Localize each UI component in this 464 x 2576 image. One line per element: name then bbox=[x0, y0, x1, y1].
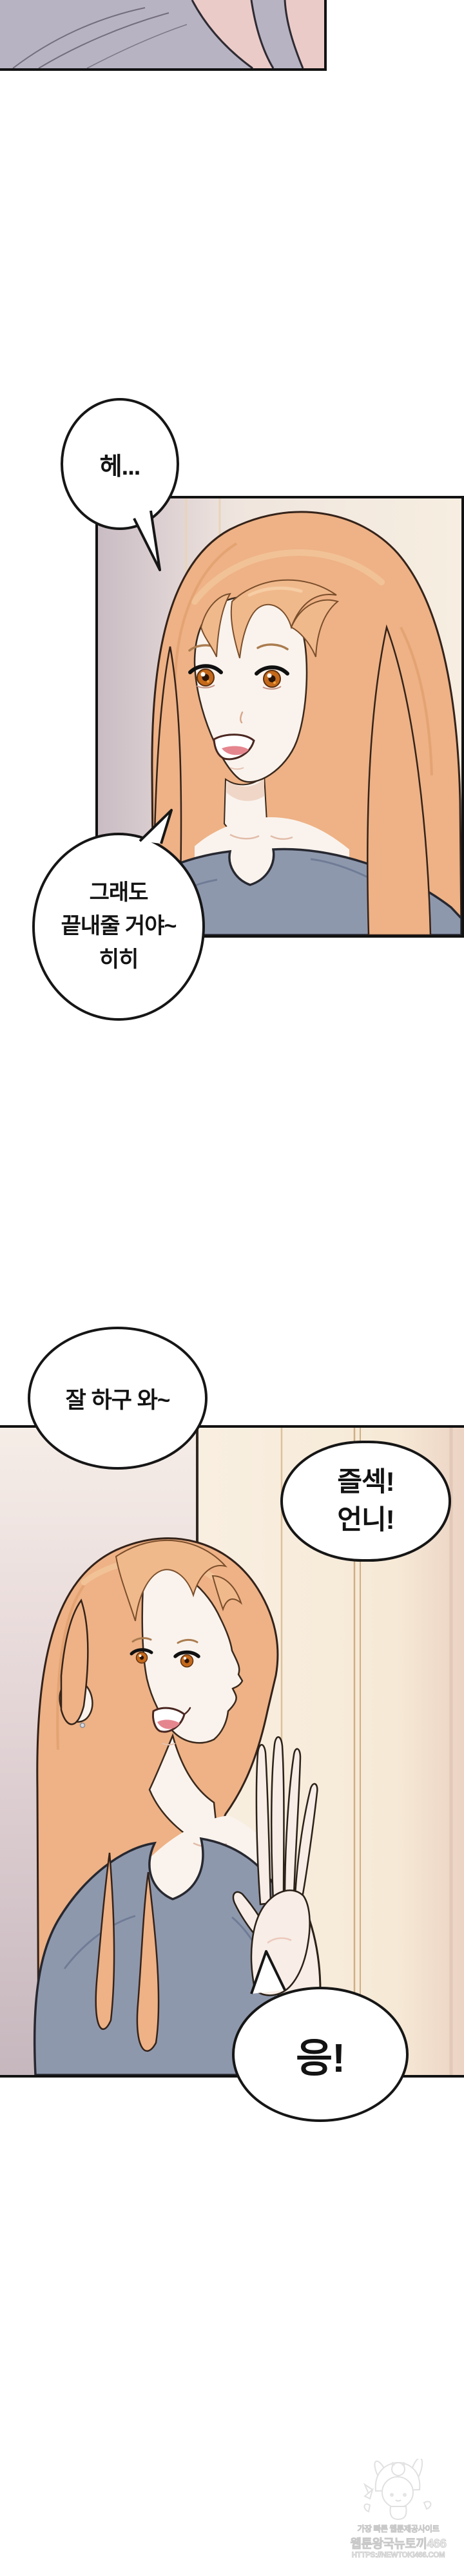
watermark-site-name: 웹툰왕국뉴토끼466 bbox=[344, 2534, 452, 2552]
speech-bubble-2: 그래도 끝내줄 거야~ 히히 bbox=[32, 833, 205, 1021]
webtoon-page: 헤... 그래도 끝내줄 거야~ 히히 잘 하구 와~ 즐섹! 언니! 응! bbox=[0, 0, 464, 2576]
speech-text-line: 응! bbox=[296, 2025, 345, 2083]
watermark-mascot-icon bbox=[360, 2459, 437, 2521]
speech-text-line: 그래도 bbox=[90, 876, 148, 910]
watermark-url: HTTPS://NEWTOKI466.COM bbox=[344, 2552, 452, 2559]
speech-text-line: 잘 하구 와~ bbox=[66, 1382, 170, 1415]
speech-text-line: 히히 bbox=[99, 943, 139, 977]
speech-bubble-5-tail bbox=[244, 1946, 295, 1999]
speech-text-line: 끝내줄 거야~ bbox=[61, 910, 177, 943]
speech-bubble-5: 응! bbox=[232, 1987, 409, 2122]
speech-bubble-3: 잘 하구 와~ bbox=[28, 1327, 208, 1470]
speech-bubble-1-tail bbox=[129, 506, 171, 576]
panel-previous-artwork bbox=[0, 0, 324, 68]
speech-bubble-2-tail bbox=[132, 804, 180, 849]
speech-text-line: 헤... bbox=[100, 446, 140, 482]
panel-previous-fragment bbox=[0, 0, 327, 71]
speech-text-line: 언니! bbox=[337, 1501, 394, 1539]
speech-bubble-4: 즐섹! 언니! bbox=[280, 1441, 451, 1562]
speech-text-line: 즐섹! bbox=[337, 1463, 394, 1501]
earring-stud bbox=[81, 1723, 85, 1728]
site-watermark: 가장 빠른 웹툰제공사이트 웹툰왕국뉴토끼466 HTTPS://NEWTOKI… bbox=[344, 2459, 452, 2559]
watermark-slogan: 가장 빠른 웹툰제공사이트 bbox=[344, 2522, 452, 2534]
